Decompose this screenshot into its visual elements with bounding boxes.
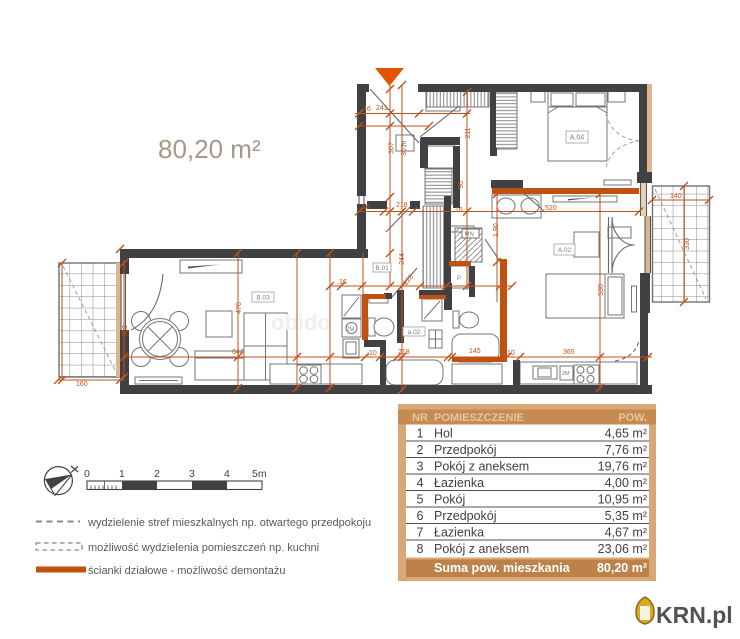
svg-text:,16: ,16: [360, 204, 370, 211]
svg-text:KRN.pl: KRN.pl: [656, 602, 733, 628]
svg-text:4: 4: [224, 468, 230, 480]
svg-text:Łazienka: Łazienka: [434, 526, 484, 540]
svg-text:Przedpokój: Przedpokój: [434, 509, 497, 523]
svg-text:160: 160: [76, 381, 88, 388]
svg-text:8: 8: [417, 542, 424, 556]
svg-text:5,35 m²: 5,35 m²: [605, 509, 647, 523]
svg-text:4,65 m²: 4,65 m²: [605, 427, 647, 441]
svg-text:330: 330: [684, 238, 691, 250]
svg-text:POW.: POW.: [618, 412, 647, 424]
svg-text:0: 0: [84, 468, 90, 480]
svg-text:80,20 m²: 80,20 m²: [597, 561, 647, 575]
svg-text:1: 1: [119, 468, 125, 480]
svg-text:B.03: B.03: [256, 295, 270, 302]
svg-text:,16: ,16: [453, 207, 463, 214]
svg-text:A.02: A.02: [558, 247, 572, 254]
svg-text:wydzielenie stref mieszkalnych: wydzielenie stref mieszkalnych np. otwar…: [87, 517, 371, 529]
svg-text:10,95 m²: 10,95 m²: [598, 493, 647, 507]
svg-text:218: 218: [396, 202, 408, 209]
svg-text:530: 530: [598, 284, 605, 296]
svg-text:218: 218: [398, 349, 410, 356]
svg-text:,10: ,10: [505, 350, 515, 357]
svg-text:3: 3: [189, 468, 195, 480]
svg-text:7: 7: [417, 526, 424, 540]
svg-text:,10: ,10: [367, 350, 377, 357]
svg-text:P: P: [457, 276, 461, 282]
svg-text:6: 6: [417, 509, 424, 523]
svg-text:228: 228: [402, 273, 415, 287]
svg-text:Pokój z aneksem: Pokój z aneksem: [434, 460, 529, 474]
svg-text:5: 5: [417, 493, 424, 507]
svg-text:2M: 2M: [562, 371, 570, 377]
svg-text:ścianki działowe - możliwość d: ścianki działowe - możliwość demontażu: [88, 565, 285, 577]
svg-text:140: 140: [670, 193, 682, 200]
svg-text:1,90: 1,90: [493, 223, 500, 237]
svg-text:A.04: A.04: [570, 135, 585, 142]
svg-text:644: 644: [232, 349, 244, 356]
svg-text:Suma pow. mieszkania: Suma pow. mieszkania: [434, 561, 571, 575]
svg-text:Przedpokój: Przedpokój: [434, 443, 497, 457]
svg-text:365: 365: [563, 349, 575, 356]
svg-text:Łazienka: Łazienka: [434, 476, 484, 490]
svg-text:a.02: a.02: [408, 329, 421, 336]
svg-text:96: 96: [458, 181, 465, 189]
svg-text:4,00 m²: 4,00 m²: [605, 476, 647, 490]
svg-text:244: 244: [399, 253, 406, 265]
svg-text:307: 307: [401, 144, 408, 156]
svg-text:,16: ,16: [361, 106, 371, 113]
svg-text:7,76 m²: 7,76 m²: [605, 443, 647, 457]
svg-text:Hol: Hol: [434, 427, 453, 441]
svg-text:307: 307: [389, 142, 396, 154]
svg-text:2: 2: [154, 468, 160, 480]
svg-text:23,06 m²: 23,06 m²: [598, 542, 647, 556]
svg-text:2M: 2M: [346, 327, 354, 333]
svg-text:5m: 5m: [252, 468, 267, 480]
svg-text:MN: MN: [465, 232, 474, 238]
svg-text:4: 4: [417, 476, 424, 490]
svg-text:4,67 m²: 4,67 m²: [605, 526, 647, 540]
svg-text:302: 302: [122, 325, 129, 337]
svg-text:B.01: B.01: [375, 265, 389, 272]
svg-text:2: 2: [417, 443, 424, 457]
svg-text:Pokój: Pokój: [434, 493, 465, 507]
svg-text:Pokój z aneksem: Pokój z aneksem: [434, 542, 529, 556]
svg-text:476: 476: [236, 302, 243, 314]
svg-text:POMIESZCZENIE: POMIESZCZENIE: [434, 412, 524, 424]
svg-text:obido: obido: [271, 310, 331, 335]
svg-text:520: 520: [545, 205, 557, 212]
svg-text:3: 3: [417, 460, 424, 474]
svg-text:145: 145: [469, 348, 481, 355]
svg-text:241: 241: [376, 105, 388, 112]
svg-text:19,76 m²: 19,76 m²: [598, 460, 647, 474]
svg-text:,16: ,16: [337, 279, 347, 286]
svg-text:80,20 m²: 80,20 m²: [158, 134, 261, 164]
svg-text:NR: NR: [412, 412, 428, 424]
svg-text:możliwość wydzielenia pomieszc: możliwość wydzielenia pomieszczeń np. ku…: [88, 542, 319, 554]
svg-text:211: 211: [465, 127, 472, 138]
svg-text:1: 1: [417, 427, 424, 441]
